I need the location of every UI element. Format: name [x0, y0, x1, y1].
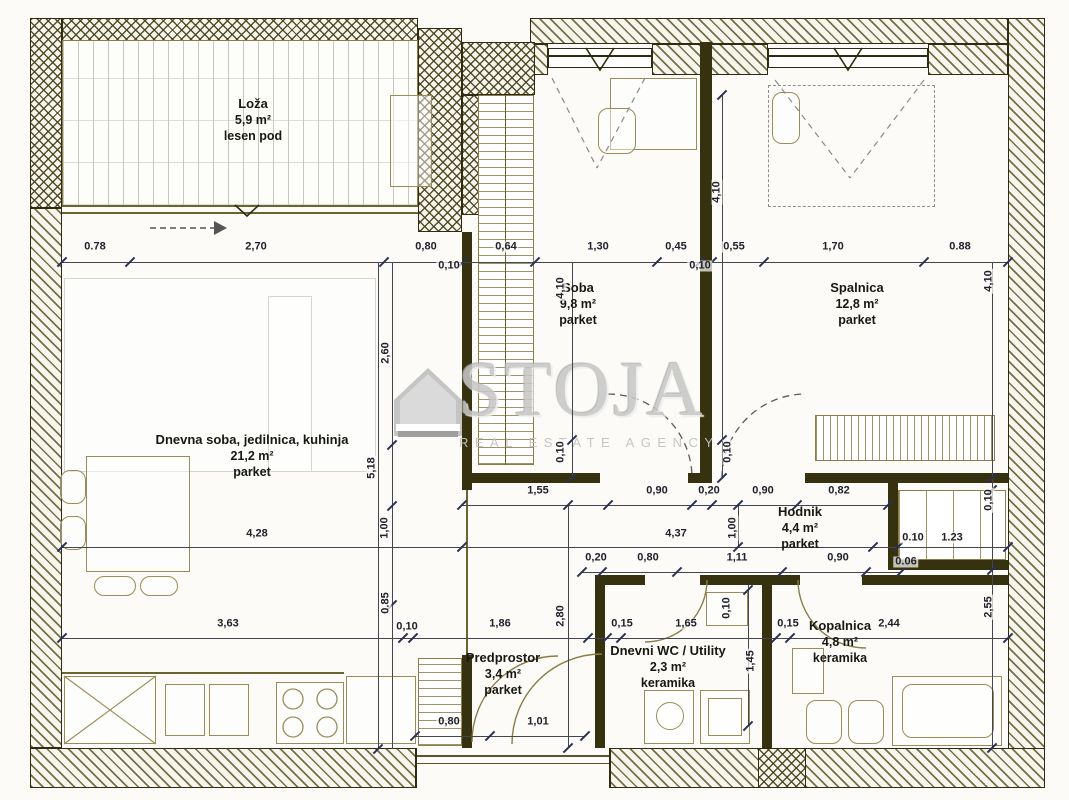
window-spalnica — [768, 48, 928, 68]
wall-balcony-parapet — [62, 18, 418, 42]
room-floor: parket — [156, 464, 349, 480]
room-floor: parket — [466, 682, 540, 698]
room-name: Loža — [224, 96, 282, 112]
dimension-label: 1,86 — [487, 619, 512, 630]
soba-chair — [598, 108, 636, 154]
bottom-wall-opening — [415, 748, 611, 788]
kitchen-stove — [276, 682, 344, 744]
kitchen-sink-bowl — [165, 684, 205, 736]
soba-wardrobe — [478, 95, 534, 465]
dimension-label: 1,30 — [585, 242, 610, 253]
dimension-line — [378, 262, 379, 749]
room-label-kopalnica: Kopalnica4,8 m²keramika — [809, 618, 871, 666]
dimension-line — [62, 547, 1008, 548]
balcony-glazing-line-2 — [62, 212, 418, 214]
room-area: 21,2 m² — [156, 448, 349, 464]
dimension-label: 2,44 — [876, 619, 901, 630]
dimension-label: 0,15 — [609, 619, 634, 630]
dimension-label: 0,10 — [722, 595, 733, 620]
kitchen-cabinet — [64, 676, 156, 744]
room-floor: parket — [559, 312, 597, 328]
wall-spalnica-bottom — [805, 473, 1008, 483]
dimension-label: 0,80 — [436, 717, 461, 728]
predprostor-cabinet — [418, 658, 462, 746]
kitchen-sink-bowl — [209, 684, 249, 736]
bottom-wall-block — [758, 748, 806, 788]
room-name: Predprostor — [466, 650, 540, 666]
wall-soba-bottom-b — [688, 473, 712, 483]
spalnica-pillow — [772, 92, 800, 144]
room-label-loza: Loža5,9 m²lesen pod — [224, 96, 282, 144]
dimension-label: 1,65 — [673, 619, 698, 630]
room-name: Kopalnica — [809, 618, 871, 634]
room-area: 5,9 m² — [224, 112, 282, 128]
dimension-label: 1.23 — [939, 533, 964, 544]
dimension-label: 0.85 — [381, 590, 392, 615]
wall-soba-corner-top — [462, 42, 535, 95]
wall-top-pier-3 — [928, 44, 1008, 75]
dimension-label: 1,11 — [725, 553, 750, 564]
room-floor: parket — [778, 536, 822, 552]
room-area: 12,8 m² — [830, 296, 883, 312]
dimension-label: 0,20 — [696, 486, 721, 497]
dimension-label: 0,80 — [413, 242, 438, 253]
dimension-label: 0.06 — [893, 557, 918, 568]
exit-arrow-head — [214, 221, 227, 235]
dimension-label: 1,00 — [728, 515, 739, 540]
dimension-label: 0,10 — [687, 261, 712, 272]
dimension-line — [462, 505, 888, 506]
dimension-label: 0,10 — [394, 622, 419, 633]
soba-wardrobe-divider — [505, 95, 506, 465]
wall-living-soba — [462, 232, 472, 490]
bath-toilet — [806, 700, 842, 744]
room-floor: keramika — [809, 650, 871, 666]
dimension-label: 1,70 — [820, 242, 845, 253]
wall-living-pred-thin — [466, 490, 468, 655]
room-label-hodnik: Hodnik4,4 m²parket — [778, 504, 822, 552]
dimension-line — [415, 736, 585, 737]
dimension-label: 0,82 — [826, 486, 851, 497]
dimension-label: 0,10 — [984, 487, 995, 512]
dimension-label: 0,15 — [775, 619, 800, 630]
balcony-bench — [390, 95, 432, 187]
room-label-predprostor: Predprostor3,4 m²parket — [466, 650, 540, 698]
bathtub-inner — [902, 684, 994, 738]
room-name: Spalnica — [830, 280, 883, 296]
dimension-line — [722, 95, 723, 478]
room-name: Hodnik — [778, 504, 822, 520]
wall-soba-bottom-a — [472, 473, 600, 483]
room-floor: parket — [830, 312, 883, 328]
wall-top-left-corner — [30, 18, 62, 208]
bath-bidet — [848, 700, 884, 744]
room-label-spalnica: Spalnica12,8 m²parket — [830, 280, 883, 328]
washing-machine-drum — [656, 702, 684, 730]
dimension-label: 1,45 — [746, 648, 757, 673]
dimension-label: 0.78 — [82, 242, 107, 253]
wall-wc-left — [595, 575, 605, 748]
spalnica-dresser — [815, 415, 995, 461]
room-name: Dnevna soba, jedilnica, kuhinja — [156, 432, 349, 448]
dimension-label: 0,45 — [663, 242, 688, 253]
utility-appliance-inner — [708, 698, 742, 736]
dimension-label: 0,20 — [583, 553, 608, 564]
dimension-label: 0,64 — [493, 242, 518, 253]
room-area: 2,3 m² — [610, 659, 726, 675]
chair — [140, 576, 178, 596]
dimension-label: 0,90 — [825, 553, 850, 564]
dimension-label: 4,10 — [556, 275, 567, 300]
dimension-label: 2,55 — [984, 594, 995, 619]
dimension-label: 0.10 — [900, 533, 925, 544]
dimension-label: 4,10 — [984, 268, 995, 293]
kitchen-counter-line — [62, 672, 344, 674]
wall-hodnik-bottom-b — [700, 575, 800, 585]
chair — [60, 470, 86, 504]
dimension-label: 4,10 — [712, 179, 723, 204]
dimension-label: 2,80 — [556, 603, 567, 628]
room-label-dnevni-wc-utility: Dnevni WC / Utility2,3 m²keramika — [610, 643, 726, 691]
dimension-label: 0.88 — [947, 242, 972, 253]
room-label-dnevna-soba: Dnevna soba, jedilnica, kuhinja21,2 m²pa… — [156, 432, 349, 480]
room-area: 4,4 m² — [778, 520, 822, 536]
dimension-label: 4,37 — [663, 529, 688, 540]
wall-top — [530, 18, 1008, 44]
dimension-label: 0,10 — [723, 439, 734, 464]
room-floor: keramika — [610, 675, 726, 691]
dimension-label: 0,10 — [556, 439, 567, 464]
dimension-label: 3,63 — [215, 619, 240, 630]
wall-right — [1008, 18, 1045, 788]
dimension-label: 1,55 — [525, 486, 550, 497]
wall-wc-kopalnica — [762, 575, 772, 748]
dimension-label: 1,01 — [525, 717, 550, 728]
dimension-label: 0,55 — [721, 242, 746, 253]
dimension-label: 2,70 — [243, 242, 268, 253]
dimension-label: 4,28 — [244, 529, 269, 540]
window-soba — [548, 48, 652, 68]
dimension-label: 0,10 — [436, 261, 461, 272]
dimension-label: 0,90 — [750, 486, 775, 497]
floor-plan: STOJA REAL ESTATE AGENCY Loža5,9 m²lesen… — [0, 0, 1069, 800]
chair — [94, 576, 136, 596]
wall-hodnik-bottom-c — [862, 575, 1008, 585]
room-area: 4,8 m² — [809, 634, 871, 650]
kitchen-fridge — [346, 676, 416, 744]
dimension-line — [568, 505, 569, 748]
wall-left — [30, 208, 62, 748]
dimension-label: 1,00 — [380, 515, 391, 540]
dimension-label: 2,60 — [381, 340, 392, 365]
dimension-label: 5,18 — [367, 455, 378, 480]
room-area: 3,4 m² — [466, 666, 540, 682]
dimension-label: 0,90 — [644, 486, 669, 497]
dimension-label: 0,80 — [635, 553, 660, 564]
room-name: Dnevni WC / Utility — [610, 643, 726, 659]
balcony-glazing-line-1 — [62, 205, 418, 207]
dimension-line — [582, 572, 901, 573]
room-floor: lesen pod — [224, 128, 282, 144]
